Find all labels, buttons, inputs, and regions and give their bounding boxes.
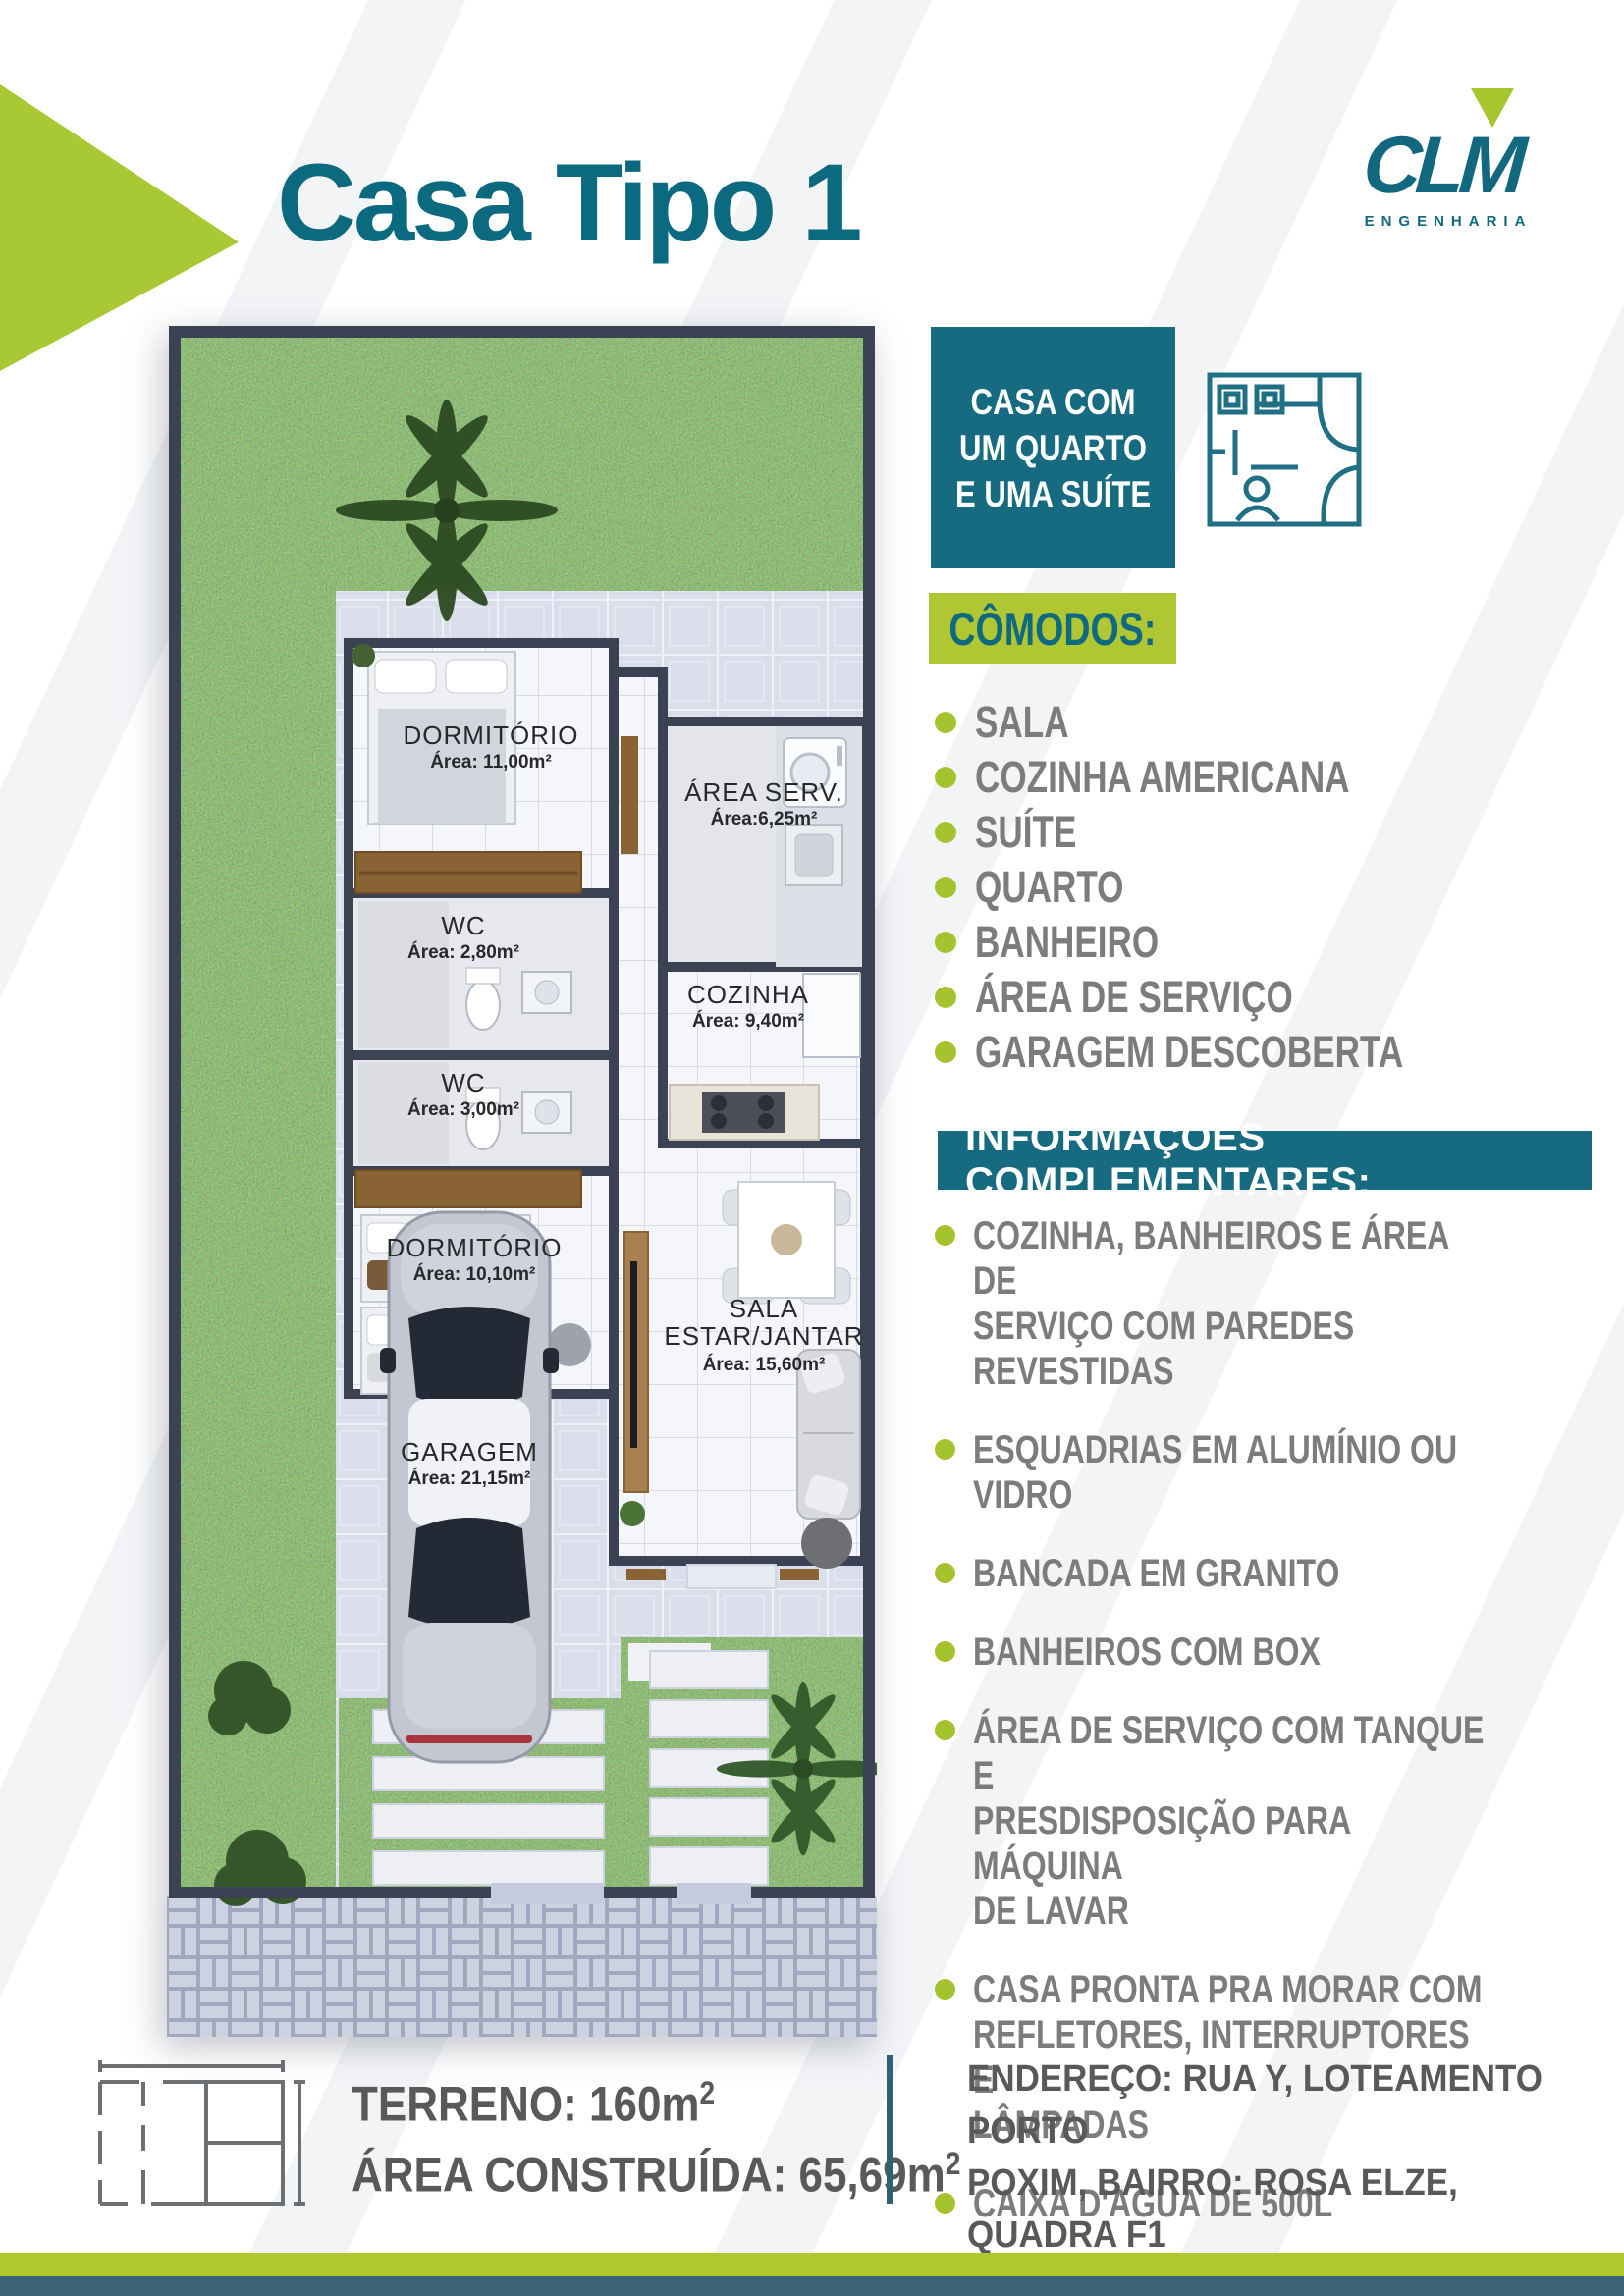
room-label: ESTAR/JANTAR bbox=[664, 1321, 863, 1351]
footer-divider bbox=[887, 2055, 893, 2204]
room-label: DORMITÓRIO bbox=[387, 1233, 563, 1262]
badge-text: CASA COM UM QUARTO E UMA SUÍTE bbox=[955, 379, 1151, 517]
dining-table bbox=[723, 1182, 850, 1304]
logo-subtitle: ENGENHARIA bbox=[1365, 213, 1533, 230]
comodos-list: SALA COZINHA AMERICANA SUÍTE QUARTO BANH… bbox=[935, 695, 1524, 1080]
list-item: BANHEIRO bbox=[935, 915, 1524, 970]
bench bbox=[626, 1569, 666, 1580]
area-construida-stat: ÁREA CONSTRUÍDA: 65,69m2 bbox=[352, 2134, 960, 2205]
sidewalk-pavers bbox=[167, 1896, 877, 2037]
list-item: BANHEIROS COM BOX bbox=[935, 1629, 1624, 1675]
room-label: COZINHA bbox=[687, 980, 809, 1009]
room-area-label: Área: 11,00m² bbox=[430, 751, 552, 773]
wardrobe bbox=[355, 1170, 581, 1207]
clm-logo-icon: CLM ENGENHARIA bbox=[1306, 77, 1591, 243]
room-area-label: Área:6,25m² bbox=[711, 808, 818, 829]
footer-green-band bbox=[0, 2253, 1624, 2276]
washing-machine-icon bbox=[776, 726, 862, 967]
room-label: DORMITÓRIO bbox=[404, 721, 579, 750]
page-title: Casa Tipo 1 bbox=[277, 139, 860, 266]
room-label: GARAGEM bbox=[401, 1437, 538, 1467]
sofa bbox=[797, 1350, 860, 1569]
side-table bbox=[801, 1518, 852, 1569]
bench bbox=[780, 1569, 819, 1580]
room-label: ÁREA SERV. bbox=[684, 777, 843, 807]
hall-console bbox=[621, 736, 638, 854]
list-item: ÁREA DE SERVIÇO COM TANQUE E PRESDISPOSI… bbox=[935, 1708, 1624, 1934]
list-item: SALA bbox=[935, 695, 1524, 750]
footer-teal-band bbox=[0, 2276, 1624, 2296]
bullet-icon bbox=[935, 712, 956, 733]
bullet-icon bbox=[935, 1720, 955, 1740]
fridge-icon bbox=[803, 974, 860, 1057]
list-item: ÁREA DE SERVIÇO bbox=[935, 970, 1524, 1025]
comodos-title: CÔMODOS: bbox=[949, 602, 1157, 656]
bullet-icon bbox=[935, 1225, 955, 1246]
stats-block: TERRENO: 160m2 ÁREA CONSTRUÍDA: 65,69m2 bbox=[352, 2063, 1044, 2204]
driveway-gate-opening bbox=[491, 1883, 604, 1904]
bullet-icon bbox=[935, 1641, 955, 1662]
comodos-header: CÔMODOS: bbox=[929, 593, 1176, 664]
terreno-stat: TERRENO: 160m2 bbox=[352, 2063, 960, 2134]
room-area-label: Área: 2,80m² bbox=[407, 941, 519, 963]
list-item: QUARTO bbox=[935, 860, 1524, 915]
bullet-icon bbox=[935, 932, 956, 953]
pedestrian-gate-opening bbox=[677, 1883, 751, 1904]
room-area-label: Área: 3,00m² bbox=[407, 1098, 519, 1120]
info-header: INFORMAÇÕES COMPLEMENTARES: bbox=[938, 1131, 1592, 1190]
bullet-icon bbox=[935, 767, 956, 788]
room-area-label: Área: 10,10m² bbox=[413, 1263, 536, 1285]
entry-step bbox=[687, 1565, 776, 1588]
bullet-icon bbox=[935, 1439, 955, 1460]
bullet-icon bbox=[935, 1041, 956, 1063]
bullet-icon bbox=[935, 822, 956, 843]
bullet-icon bbox=[935, 877, 956, 898]
logo-brand: CLM bbox=[1361, 121, 1532, 210]
floorplan-render: DORMITÓRIO Área: 11,00m² ÁREA SERV. Área… bbox=[167, 324, 877, 2037]
list-item: BANCADA EM GRANITO bbox=[935, 1551, 1624, 1596]
bullet-icon bbox=[935, 1563, 955, 1583]
room-area-label: Área: 9,40m² bbox=[692, 1010, 804, 1032]
list-item: ESQUADRIAS EM ALUMÍNIO OU VIDRO bbox=[935, 1427, 1624, 1518]
bullet-icon bbox=[935, 987, 956, 1008]
mini-floorplan-icon bbox=[88, 2056, 309, 2214]
list-item: GARAGEM DESCOBERTA bbox=[935, 1025, 1524, 1080]
list-item: COZINHA, BANHEIROS E ÁREA DE SERVIÇO COM… bbox=[935, 1213, 1624, 1394]
list-item: COZINHA AMERICANA bbox=[935, 750, 1524, 805]
room-label: SALA bbox=[730, 1294, 799, 1323]
list-item: SUÍTE bbox=[935, 805, 1524, 860]
room-area-label: Área: 21,15m² bbox=[408, 1468, 531, 1489]
info-title: INFORMAÇÕES COMPLEMENTARES: bbox=[938, 1116, 1592, 1204]
room-area-label: Área: 15,60m² bbox=[703, 1354, 826, 1375]
room-label: WC bbox=[441, 911, 485, 940]
bullet-icon bbox=[935, 1979, 955, 2000]
floorplan-badge-icon bbox=[1200, 365, 1369, 534]
flyer-page: Casa Tipo 1 CLM ENGENHARIA bbox=[0, 0, 1624, 2296]
highlight-badge: CASA COM UM QUARTO E UMA SUÍTE bbox=[931, 327, 1175, 568]
room-label: WC bbox=[441, 1068, 485, 1097]
